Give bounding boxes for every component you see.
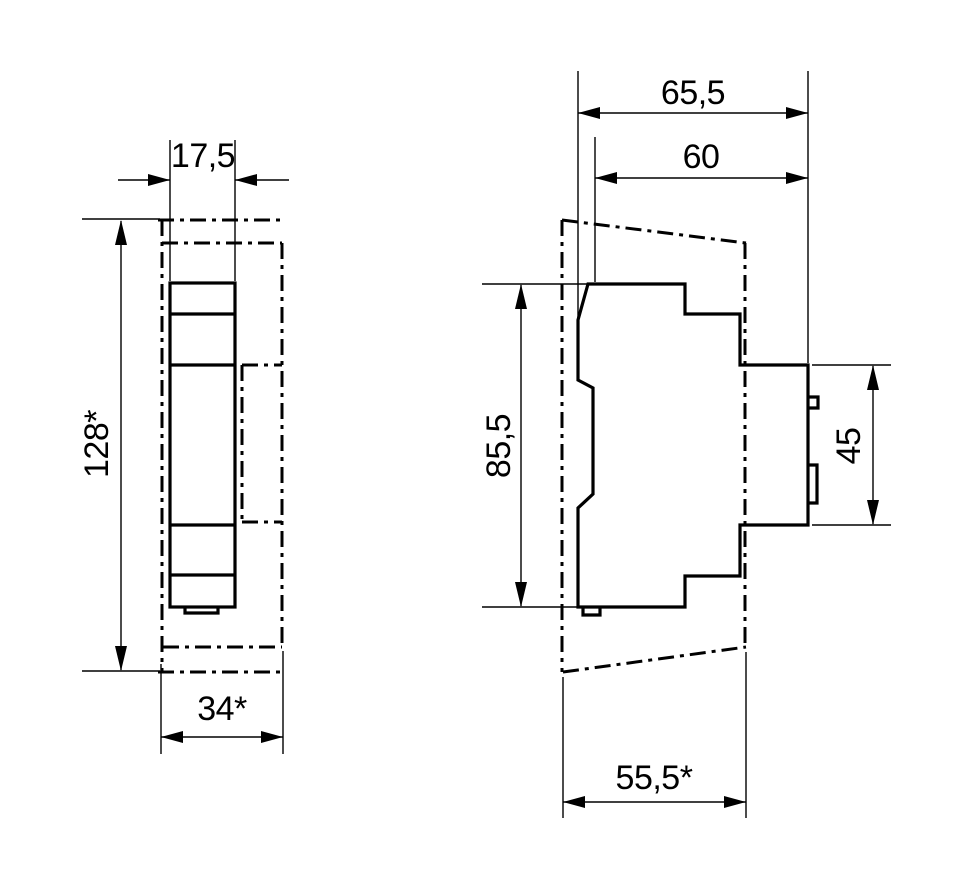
dim-label-body-height: 85,5 [480, 414, 518, 478]
dim-overall-depth: 65,5 [578, 71, 808, 363]
arrowhead [595, 172, 617, 184]
arrowhead [148, 174, 170, 186]
device-side-outline [578, 284, 808, 607]
arrowhead [261, 731, 283, 743]
arrowhead [578, 107, 600, 119]
dim-label-overall-height: 128* [78, 410, 116, 478]
arrowhead [724, 796, 746, 808]
arrowhead [115, 646, 127, 671]
dim-label-din-window-height: 45 [830, 428, 868, 465]
dim-label-panel-recess-depth: 55,5* [616, 759, 693, 797]
dim-din-window-height: 45 [812, 365, 891, 525]
arrowhead [235, 174, 257, 186]
dim-overall-width: 34* [161, 651, 283, 754]
arrowhead [786, 172, 808, 184]
arrowhead [867, 500, 879, 525]
enclosure-line-top [562, 220, 746, 243]
dim-body-height: 85,5 [480, 284, 587, 607]
side-view: 65,5 60 85,5 45 [480, 71, 891, 818]
front-enclosure-outline [158, 220, 284, 672]
arrowhead [867, 365, 879, 390]
dimensional-drawing-page: 17,5 128* 34* [0, 0, 970, 892]
arrowhead [161, 731, 183, 743]
dim-panel-recess-depth: 55,5* [563, 652, 746, 818]
dim-module-width: 17,5 [118, 137, 289, 281]
dim-label-overall-depth: 65,5 [661, 74, 725, 112]
dim-overall-height: 128* [78, 219, 160, 671]
dimensional-drawing: 17,5 128* 34* [0, 0, 970, 892]
arrowhead [563, 796, 585, 808]
arrowhead [786, 107, 808, 119]
arrowhead [515, 582, 527, 607]
dim-label-body-depth: 60 [683, 138, 720, 176]
side-device-profile [578, 284, 818, 615]
front-device-body [170, 283, 235, 613]
enclosure-line-bottom [563, 647, 746, 672]
arrowhead [115, 220, 127, 245]
arrowhead [515, 284, 527, 309]
dim-label-overall-width: 34* [197, 690, 247, 728]
dim-body-depth: 60 [595, 137, 808, 282]
front-view: 17,5 128* 34* [78, 137, 289, 754]
dim-label-module-width: 17,5 [171, 137, 235, 175]
side-enclosure-outline [562, 220, 746, 672]
device-front-outline [170, 283, 235, 607]
